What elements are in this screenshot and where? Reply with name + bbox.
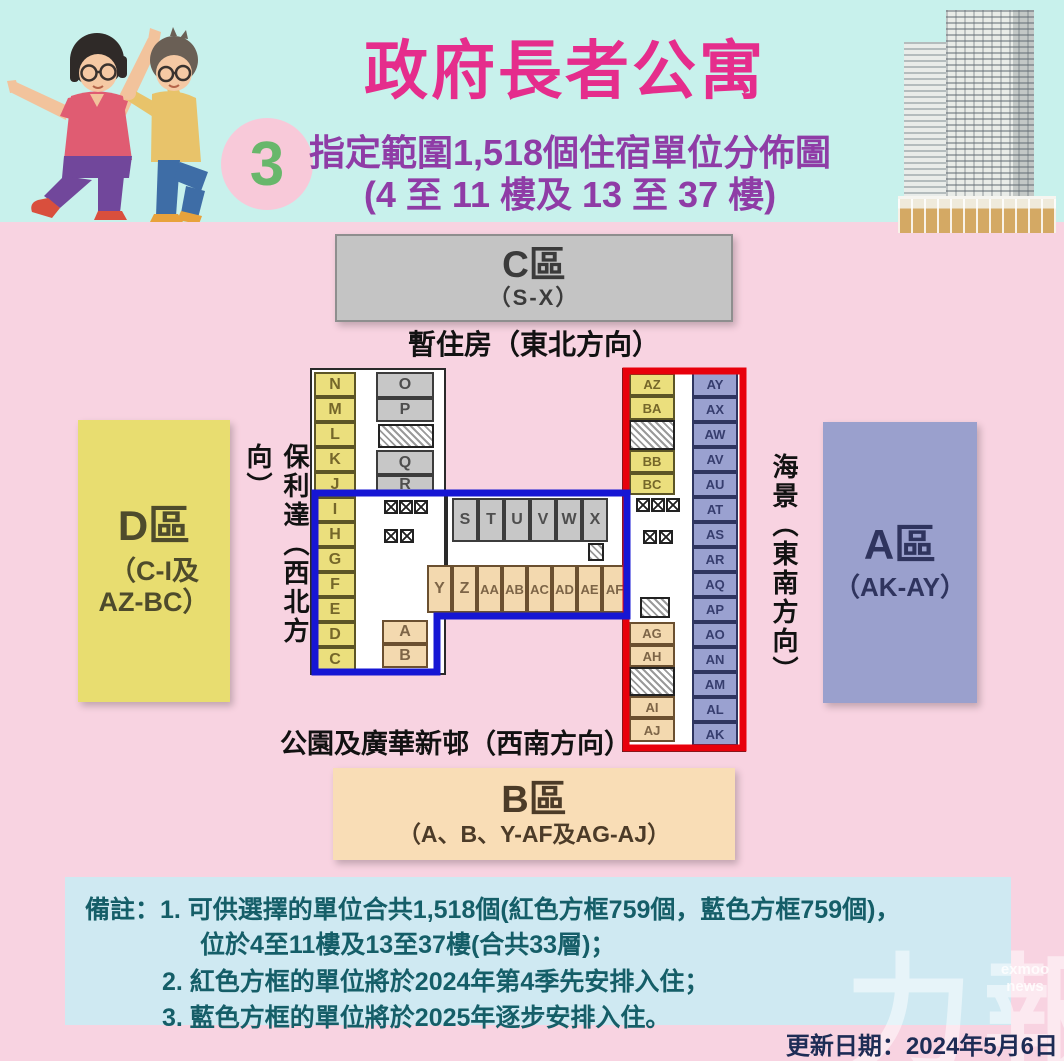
- room-D: D: [314, 622, 356, 647]
- room-AX: AX: [692, 397, 738, 422]
- room-F: F: [314, 572, 356, 597]
- room-AR: AR: [692, 547, 738, 572]
- stair-block-1: [629, 420, 675, 450]
- elevator-icon-6: [651, 498, 665, 512]
- room-T: T: [478, 498, 504, 542]
- room-U: U: [504, 498, 530, 542]
- room-Y: Y: [427, 565, 452, 613]
- room-L: L: [314, 422, 356, 447]
- room-A: A: [382, 620, 428, 644]
- room-BC: BC: [629, 473, 675, 495]
- room-AS: AS: [692, 522, 738, 547]
- elevator-icon-9: [659, 530, 673, 544]
- room-AW: AW: [692, 422, 738, 447]
- room-E: E: [314, 597, 356, 622]
- room-P: P: [376, 398, 434, 422]
- room-AK: AK: [692, 722, 738, 746]
- poster: 3 政府長者公寓 指定範圍1,518個住宿單位分佈圖 (4 至 11 樓及 13…: [0, 0, 1064, 1061]
- room-Q: Q: [376, 450, 434, 475]
- room-B: B: [382, 644, 428, 668]
- room-O: O: [376, 372, 434, 398]
- room-Z: Z: [452, 565, 477, 613]
- room-AZ: AZ: [629, 373, 675, 396]
- room-J: J: [314, 472, 356, 497]
- room-AO: AO: [692, 622, 738, 647]
- elevator-icon-3: [384, 529, 398, 543]
- note-line-4: 3. 藍色方框的單位將於2025年逐步安排入住。: [162, 998, 670, 1034]
- stair-block-2: [629, 667, 675, 696]
- room-AP: AP: [692, 597, 738, 622]
- elevator-icon-7: [666, 498, 680, 512]
- stair-block-3: [640, 597, 670, 618]
- elevator-icon-2: [414, 500, 428, 514]
- room-AE: AE: [577, 565, 602, 613]
- room-AC: AC: [527, 565, 552, 613]
- room-V: V: [530, 498, 556, 542]
- elevator-icon-0: [384, 500, 398, 514]
- room-BB: BB: [629, 450, 675, 473]
- room-AY: AY: [692, 372, 738, 397]
- room-BA: BA: [629, 396, 675, 420]
- room-X: X: [582, 498, 608, 542]
- room-AJ: AJ: [629, 718, 675, 742]
- watermark-subtext: exmoo news: [988, 962, 1062, 995]
- room-W: W: [556, 498, 582, 542]
- room-AA: AA: [477, 565, 502, 613]
- updated-date: 更新日期：2024年5月6日: [786, 1026, 1058, 1061]
- room-AD: AD: [552, 565, 577, 613]
- stair-block-0: [378, 424, 434, 448]
- room-C: C: [314, 647, 356, 672]
- room-AL: AL: [692, 697, 738, 722]
- room-AN: AN: [692, 647, 738, 672]
- room-AI: AI: [629, 696, 675, 718]
- room-K: K: [314, 447, 356, 472]
- room-AH: AH: [629, 645, 675, 667]
- elevator-icon-4: [400, 529, 414, 543]
- room-AT: AT: [692, 497, 738, 522]
- room-M: M: [314, 397, 356, 422]
- note-line-2: 位於4至11樓及13至37樓(合共33層)；: [200, 925, 615, 961]
- elevator-icon-8: [643, 530, 657, 544]
- room-AU: AU: [692, 472, 738, 497]
- room-AM: AM: [692, 672, 738, 697]
- room-AV: AV: [692, 447, 738, 472]
- room-N: N: [314, 372, 356, 397]
- room-I: I: [314, 497, 356, 522]
- room-AB: AB: [502, 565, 527, 613]
- stair-block-4: [588, 543, 604, 561]
- elevator-icon-1: [399, 500, 413, 514]
- room-S: S: [452, 498, 478, 542]
- room-G: G: [314, 547, 356, 572]
- note-line-3: 2. 紅色方框的單位將於2024年第4季先安排入住；: [162, 962, 709, 998]
- room-H: H: [314, 522, 356, 547]
- room-R: R: [376, 475, 434, 495]
- room-AQ: AQ: [692, 572, 738, 597]
- elevator-icon-5: [636, 498, 650, 512]
- note-line-1: 備註：1. 可供選擇的單位合共1,518個(紅色方框759個，藍色方框759個)…: [85, 890, 900, 926]
- room-AF: AF: [602, 565, 627, 613]
- room-AG: AG: [629, 622, 675, 645]
